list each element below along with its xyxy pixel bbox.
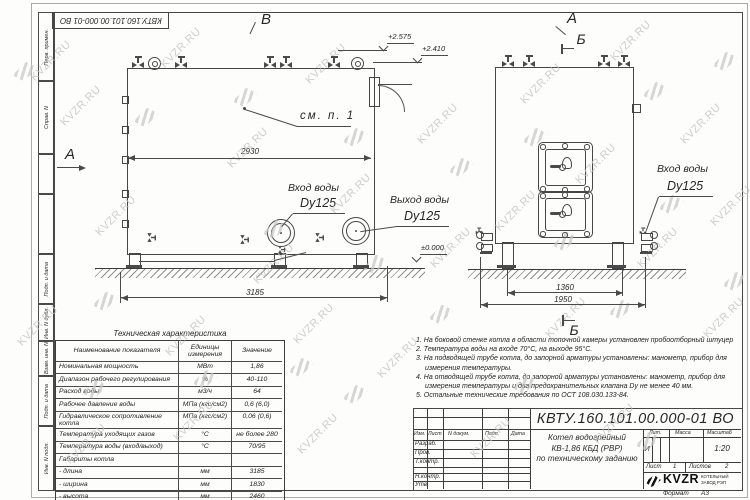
role-razrab: Разраб.: [415, 441, 437, 447]
valve-handwheel-icon: [650, 231, 658, 239]
elevation-2410: +2.410: [422, 44, 445, 53]
margin-cell-inv-podl: Инв. N подл.: [38, 425, 55, 491]
table-cell-unit: МВт: [178, 361, 231, 374]
door-bolt: [540, 231, 546, 237]
margin-label: Подп. и дата: [44, 262, 50, 296]
door-bolt: [584, 193, 590, 199]
outlet-underline: [397, 226, 449, 227]
valve-icon: [264, 55, 276, 68]
company-line2: ЗАВОД РЭП: [701, 480, 729, 486]
table-cell-value: не более 280: [231, 428, 282, 441]
valve-icon: [132, 55, 144, 68]
note-item: 2. Температура воды на входе 70°С, на вы…: [416, 345, 746, 354]
foot-plate: [497, 265, 516, 268]
table-cell-name: - длина: [56, 466, 178, 479]
view-a-label: А: [60, 146, 80, 163]
margin-cell-podp-data-1: Подп. и дата: [38, 253, 55, 305]
sheets-value: 2: [725, 464, 728, 470]
extension-line: [480, 257, 481, 308]
table-row: Гидравлическое сопротивление котлаМПа (к…: [56, 411, 284, 429]
title-block-line: [685, 462, 686, 472]
scale-value: 1:20: [703, 444, 741, 453]
elevation-shelf: [421, 55, 448, 56]
dimension-arrow: [79, 165, 86, 171]
see-note-text: см. п. 1: [300, 110, 355, 122]
elevation-2575: +2.575: [388, 32, 411, 41]
peephole-icon: [562, 157, 572, 169]
valve-icon: [328, 55, 340, 68]
wall-bracket: [122, 126, 129, 134]
side-stub: [632, 104, 641, 113]
skid-line: [139, 261, 274, 262]
table-row: Номинальная мощностьМВт1,86: [56, 361, 284, 374]
note-item: 3. На подводящей трубе котла, до запорно…: [416, 354, 746, 372]
table-cell-name: Температура уходящих газов: [56, 428, 178, 441]
outlet-dn: Dy125: [404, 209, 440, 223]
top-stamp-number: КВТУ.160.101.00.000-01 ВО: [60, 16, 162, 25]
table-cell-name: Рабочее давление воды: [56, 398, 178, 411]
table-cell-value: 0,6 (6,0): [231, 398, 282, 411]
dimension-arrow: [364, 155, 371, 161]
wall-bracket: [122, 156, 129, 164]
notes-block: 1. На боковой стенке котла в области топ…: [416, 336, 746, 401]
tech-table: Наименование показателя Единицы измерени…: [55, 340, 285, 500]
dimension-arrow: [638, 302, 645, 308]
company-line1: КОТЕЛЬНЫЙ: [701, 474, 729, 480]
note-item: 4. На отводящей трубе котла, до запорной…: [416, 373, 746, 391]
format-value: А3: [701, 490, 709, 497]
elevation-leader: [373, 62, 422, 63]
title-block-line: [413, 467, 530, 468]
table-cell-unit: мм: [178, 478, 231, 491]
title-block-line: [443, 408, 444, 489]
extension-line: [645, 257, 646, 308]
inlet-right-underline: [659, 196, 713, 197]
table-title: Техническая характеристика: [85, 329, 255, 338]
note-item: 1. На боковой стенке котла в области топ…: [416, 336, 746, 345]
title-block: КВТУ.160.101.00.000-01 ВО Котел водогрей…: [413, 408, 741, 489]
mass-label: Масса: [675, 430, 691, 436]
door-bolt: [540, 186, 546, 192]
section-b-tick: [563, 320, 575, 321]
foot-plate: [126, 265, 142, 268]
dimension-arrow: [380, 295, 387, 301]
door-bolt: [562, 192, 568, 198]
valve-icon: [315, 233, 324, 242]
valve-icon: [278, 246, 286, 253]
sheet-label: Лист: [646, 464, 661, 470]
kvzr-logo-text: KVZR: [663, 472, 699, 486]
role-prov: Пров.: [415, 450, 431, 456]
view-a-arrow-line: [57, 167, 81, 168]
title-block-line: [643, 472, 741, 473]
table-cell-value: 70/95: [231, 441, 282, 454]
table-cell-value: 40-110: [231, 373, 282, 386]
title-block-line: [660, 437, 661, 462]
table-row: - длинамм3185: [56, 466, 284, 479]
company-name: КОТЕЛЬНЫЙ ЗАВОД РЭП: [701, 474, 729, 485]
title-block-line: [530, 408, 531, 489]
title-block-line: [413, 473, 530, 474]
table-cell-name: Расход воды: [56, 386, 178, 399]
title-block-line: [427, 408, 428, 489]
door-bolt: [562, 232, 568, 238]
title-block-line: [413, 417, 530, 418]
drawing-sheet: Перв. примен. Справ. N Подп. и дата Инв.…: [0, 0, 750, 500]
margin-label: Взам. инв. N: [44, 342, 50, 374]
valve-handwheel-icon: [650, 242, 658, 250]
lifting-lug-icon: [351, 57, 364, 70]
see-note-underline: [297, 126, 351, 127]
dim-1360-text: 1360: [535, 283, 595, 292]
title-block-line: [413, 481, 530, 482]
table-cell-value: 1830: [231, 478, 282, 491]
table-cell-name: Диапазон рабочего регулирования: [56, 373, 178, 386]
section-b-tick: [562, 48, 574, 49]
margin-cell-sprav-n: Справ. N: [38, 80, 55, 155]
title-block-line: [530, 429, 741, 430]
valve-handwheel-icon: [476, 242, 484, 250]
table-cell-value: 2460: [231, 491, 282, 500]
table-cell-unit: мм: [178, 491, 231, 500]
table-row: - ширинамм1830: [56, 478, 284, 491]
table-cell-name: - высота: [56, 491, 178, 500]
table-row: Рабочее давление водыМПа (кгс/см2)0,6 (6…: [56, 398, 284, 411]
view-a-top-label: А: [562, 10, 582, 27]
col-izm: Изм.: [414, 431, 425, 437]
wall-bracket: [122, 190, 129, 198]
table-cell-value: [231, 453, 282, 466]
dimension-arrow: [128, 155, 135, 161]
elevation-shelf: [387, 43, 414, 44]
table-row: Габариты котла: [56, 453, 284, 466]
table-cell-name: Гидравлическое сопротивление котла: [56, 411, 178, 429]
foot-plate: [353, 265, 369, 268]
inlet-underline: [293, 213, 345, 214]
door-bolt: [540, 193, 546, 199]
title-block-line: [413, 440, 530, 441]
dim-3185-line: [121, 297, 387, 298]
dim-1950-line: [481, 304, 645, 305]
inlet-label: Вход воды: [288, 182, 339, 194]
door-bolt: [584, 144, 590, 150]
table-header-name: Наименование показателя: [56, 341, 178, 361]
foot-plate: [271, 265, 287, 268]
note-item: 5. Остальные технические требования по О…: [416, 391, 746, 400]
margin-label: Справ. N: [44, 106, 50, 129]
margin-label: Подп. и дата: [44, 384, 50, 418]
col-data: Дата: [511, 431, 525, 437]
foot-plate: [640, 252, 652, 254]
table-cell-name: Номинальная мощность: [56, 361, 178, 374]
extension-line: [387, 266, 388, 302]
product-name-line2: КВ-1,86 КБД (РВР): [531, 444, 643, 455]
product-name-line3: по техническому заданию: [531, 454, 643, 465]
table-row: Диапазон рабочего регулирования%40-110: [56, 373, 284, 386]
outlet-label: Выход воды: [390, 194, 449, 206]
dim-3185-text: 3185: [235, 288, 275, 297]
margin-cell-empty: [38, 153, 55, 195]
door-bolt: [540, 144, 546, 150]
format-label: Формат: [663, 490, 689, 497]
door-bolt: [584, 186, 590, 192]
table-cell-value: 64: [231, 386, 282, 399]
product-name-line1: Котел водогрейный: [531, 433, 643, 444]
wall-bracket: [122, 96, 129, 104]
foot-plate: [607, 265, 626, 268]
col-list: Лист: [428, 431, 442, 437]
title-block-line: [669, 429, 670, 462]
table-cell-unit: [178, 453, 231, 466]
top-stamp-box: КВТУ.160.101.00.000-01 ВО: [52, 12, 169, 29]
valve-icon: [175, 55, 187, 68]
title-block-line: [643, 462, 741, 463]
peephole-icon: [562, 204, 572, 216]
inlet-right-label: Вход воды: [657, 163, 708, 175]
table-cell-value: 1,86: [231, 361, 282, 374]
table-cell-name: - ширина: [56, 478, 178, 491]
sheets-label: Листов: [689, 464, 711, 470]
section-b-top-label: Б: [571, 31, 591, 47]
product-name: Котел водогрейный КВ-1,86 КБД (РВР) по т…: [531, 433, 643, 465]
door-bolt: [562, 143, 568, 149]
valve-icon: [523, 54, 535, 67]
title-block-line: [413, 458, 530, 459]
foot-plate: [480, 252, 492, 254]
ground-hatch: [468, 269, 686, 279]
table-cell-value: 0,06 (0,6): [231, 411, 282, 429]
valve-icon: [147, 233, 156, 242]
table-cell-value: 3185: [231, 466, 282, 479]
door-bolt: [584, 231, 590, 237]
scale-label: Масштаб: [707, 430, 732, 436]
view-b-label: В: [256, 11, 276, 28]
dim-2930-line: [129, 158, 371, 159]
dimension-arrow: [481, 302, 488, 308]
margin-cell-empty: [38, 193, 55, 255]
wall-bracket: [122, 220, 129, 228]
valve-icon: [598, 54, 610, 67]
dim-1360-line: [508, 292, 623, 293]
table-header-value: Значение: [231, 341, 282, 361]
inlet-right-dn: Dy125: [667, 179, 703, 193]
valve-icon: [240, 235, 249, 244]
doc-number: КВТУ.160.101.00.000-01 ВО: [532, 411, 739, 427]
elevation-shelf: [420, 254, 447, 255]
dimension-arrow: [508, 290, 515, 296]
margin-cell-vzam-inv: Взам. инв. N: [38, 340, 55, 377]
title-block-line: [703, 429, 704, 462]
title-block-line: [413, 429, 530, 430]
valve-icon: [280, 55, 292, 68]
dimension-arrow: [616, 290, 623, 296]
table-cell-unit: °С: [178, 441, 231, 454]
dimension-arrow: [121, 295, 128, 301]
elevation-leader: [338, 50, 387, 51]
table-cell-unit: мм: [178, 466, 231, 479]
valve-icon: [502, 54, 514, 67]
col-ndoc: N докум.: [448, 431, 469, 437]
sheet-value: 1: [673, 464, 676, 470]
valve-handwheel-icon: [476, 231, 484, 239]
table-row: - высотамм2460: [56, 491, 284, 500]
door-detail-line: [378, 84, 412, 85]
margin-cell-podp-data-2: Подп. и дата: [38, 375, 55, 427]
margin-label: Инв. N подл.: [44, 442, 50, 474]
valve-icon: [618, 54, 630, 67]
